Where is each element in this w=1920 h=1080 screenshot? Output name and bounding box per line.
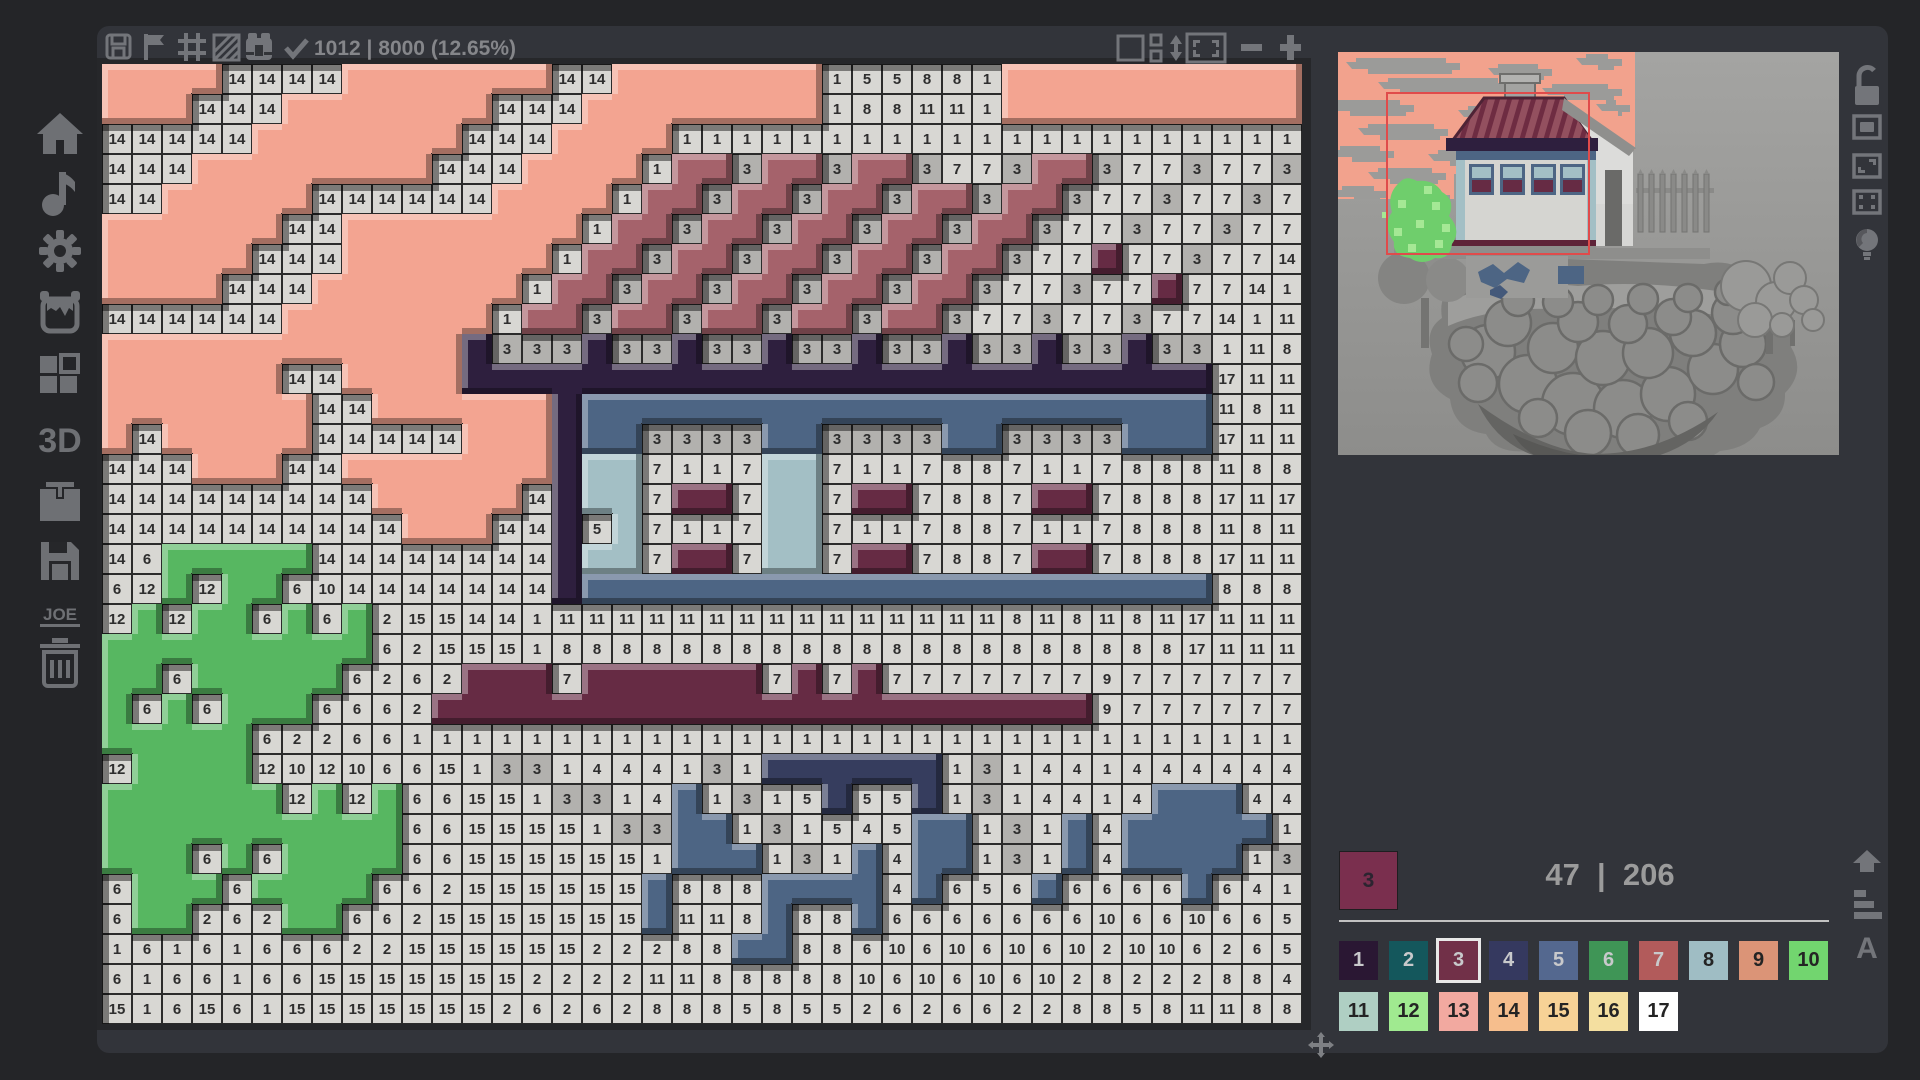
svg-text:2: 2 <box>293 731 301 748</box>
svg-text:6: 6 <box>293 971 301 988</box>
svg-text:1: 1 <box>983 821 991 838</box>
svg-text:14: 14 <box>259 101 276 118</box>
svg-text:14: 14 <box>469 581 486 598</box>
svg-text:8: 8 <box>1283 341 1291 358</box>
svg-text:7: 7 <box>563 671 571 688</box>
svg-text:15: 15 <box>439 911 456 928</box>
svg-text:8: 8 <box>743 641 751 658</box>
svg-text:4: 4 <box>1283 761 1292 778</box>
svg-text:12: 12 <box>199 581 216 598</box>
svg-text:15: 15 <box>559 881 576 898</box>
svg-text:7: 7 <box>1163 671 1171 688</box>
svg-text:8: 8 <box>1103 641 1111 658</box>
svg-text:3: 3 <box>1283 161 1291 178</box>
svg-text:1: 1 <box>893 131 901 148</box>
svg-text:14: 14 <box>139 311 156 328</box>
svg-text:14: 14 <box>319 551 336 568</box>
svg-text:1: 1 <box>983 71 991 88</box>
svg-text:3: 3 <box>1223 221 1231 238</box>
svg-text:8: 8 <box>683 1001 691 1018</box>
svg-text:14: 14 <box>139 161 156 178</box>
svg-text:2: 2 <box>563 971 571 988</box>
svg-text:6: 6 <box>1013 971 1021 988</box>
svg-text:6: 6 <box>983 1001 991 1018</box>
svg-text:1: 1 <box>623 731 631 748</box>
svg-text:7: 7 <box>1193 281 1201 298</box>
svg-text:8: 8 <box>1193 491 1201 508</box>
svg-text:3: 3 <box>863 431 871 448</box>
svg-text:6: 6 <box>293 581 301 598</box>
svg-text:6: 6 <box>443 821 451 838</box>
svg-text:11: 11 <box>709 911 725 928</box>
svg-text:6: 6 <box>203 941 211 958</box>
svg-text:4: 4 <box>1193 761 1202 778</box>
svg-text:14: 14 <box>439 431 456 448</box>
svg-text:6: 6 <box>233 1001 241 1018</box>
svg-text:11: 11 <box>1249 431 1265 448</box>
svg-text:15: 15 <box>559 941 576 958</box>
svg-text:14: 14 <box>379 581 396 598</box>
svg-text:11: 11 <box>979 611 995 628</box>
svg-text:4: 4 <box>1103 821 1112 838</box>
svg-text:8: 8 <box>1133 521 1141 538</box>
svg-text:6: 6 <box>383 911 391 928</box>
svg-text:2: 2 <box>443 671 451 688</box>
svg-text:7: 7 <box>1013 521 1021 538</box>
svg-text:1: 1 <box>773 791 781 808</box>
svg-text:11: 11 <box>859 611 875 628</box>
svg-text:15: 15 <box>289 1001 306 1018</box>
svg-text:14: 14 <box>289 281 306 298</box>
svg-text:8: 8 <box>1073 641 1081 658</box>
svg-text:4: 4 <box>1253 791 1262 808</box>
svg-text:1: 1 <box>863 731 871 748</box>
svg-text:11: 11 <box>1219 461 1235 478</box>
svg-text:15: 15 <box>499 881 516 898</box>
svg-text:1: 1 <box>683 461 691 478</box>
svg-text:2: 2 <box>413 641 421 658</box>
svg-text:3: 3 <box>623 821 631 838</box>
svg-text:7: 7 <box>743 551 751 568</box>
svg-text:2: 2 <box>1193 971 1201 988</box>
svg-text:14: 14 <box>109 491 126 508</box>
svg-text:10: 10 <box>1129 941 1146 958</box>
svg-text:8: 8 <box>1283 461 1291 478</box>
svg-text:7: 7 <box>983 161 991 178</box>
svg-text:14: 14 <box>139 521 156 538</box>
svg-text:3: 3 <box>1043 221 1051 238</box>
svg-text:1: 1 <box>833 851 841 868</box>
svg-text:1: 1 <box>983 131 991 148</box>
svg-text:6: 6 <box>203 971 211 988</box>
svg-text:15: 15 <box>499 911 516 928</box>
svg-text:1: 1 <box>593 731 601 748</box>
svg-text:6: 6 <box>113 881 121 898</box>
svg-text:11: 11 <box>1279 641 1295 658</box>
svg-text:7: 7 <box>653 521 661 538</box>
svg-text:8: 8 <box>1193 551 1201 568</box>
svg-text:1: 1 <box>533 641 541 658</box>
svg-text:1: 1 <box>773 851 781 868</box>
svg-text:14: 14 <box>319 431 336 448</box>
svg-text:15: 15 <box>469 791 486 808</box>
svg-text:14: 14 <box>289 71 306 88</box>
svg-text:6: 6 <box>1013 881 1021 898</box>
svg-text:1: 1 <box>1283 131 1291 148</box>
svg-text:14: 14 <box>379 551 396 568</box>
svg-text:14: 14 <box>259 71 276 88</box>
svg-text:14: 14 <box>499 521 516 538</box>
svg-text:3: 3 <box>623 281 631 298</box>
svg-text:3: 3 <box>1103 341 1111 358</box>
svg-text:1: 1 <box>503 731 511 748</box>
svg-text:2: 2 <box>1103 941 1111 958</box>
svg-text:1: 1 <box>1043 821 1051 838</box>
svg-text:3: 3 <box>893 431 901 448</box>
svg-text:6: 6 <box>353 731 361 748</box>
svg-text:15: 15 <box>109 1001 126 1018</box>
svg-text:1: 1 <box>653 851 661 868</box>
svg-text:15: 15 <box>619 911 636 928</box>
svg-text:1: 1 <box>683 761 691 778</box>
svg-text:1: 1 <box>1073 731 1081 748</box>
svg-text:14: 14 <box>169 131 186 148</box>
svg-text:6: 6 <box>233 911 241 928</box>
svg-text:11: 11 <box>649 971 665 988</box>
svg-text:3: 3 <box>653 251 661 268</box>
svg-text:8: 8 <box>1163 551 1171 568</box>
svg-text:11: 11 <box>1189 1001 1205 1018</box>
svg-text:14: 14 <box>289 251 306 268</box>
svg-text:4: 4 <box>1133 761 1142 778</box>
svg-text:8: 8 <box>833 941 841 958</box>
svg-text:1: 1 <box>473 761 481 778</box>
svg-text:15: 15 <box>409 1001 426 1018</box>
svg-text:6: 6 <box>263 941 271 958</box>
svg-text:1: 1 <box>713 521 721 538</box>
svg-text:7: 7 <box>923 521 931 538</box>
svg-text:14: 14 <box>139 131 156 148</box>
svg-text:1: 1 <box>1043 521 1051 538</box>
svg-text:14: 14 <box>229 131 246 148</box>
svg-text:1: 1 <box>1013 791 1021 808</box>
svg-text:4: 4 <box>1223 761 1232 778</box>
svg-text:14: 14 <box>319 461 336 478</box>
svg-text:6: 6 <box>953 971 961 988</box>
svg-text:8: 8 <box>1223 971 1231 988</box>
svg-text:15: 15 <box>349 1001 366 1018</box>
svg-text:3: 3 <box>833 341 841 358</box>
svg-text:8: 8 <box>983 491 991 508</box>
svg-text:2: 2 <box>1163 971 1171 988</box>
svg-text:8: 8 <box>1223 581 1231 598</box>
svg-text:7: 7 <box>1073 311 1081 328</box>
svg-text:7: 7 <box>923 551 931 568</box>
svg-text:1: 1 <box>923 731 931 748</box>
svg-text:1: 1 <box>503 311 511 328</box>
svg-text:14: 14 <box>499 611 516 628</box>
svg-text:1: 1 <box>413 731 421 748</box>
svg-text:11: 11 <box>1249 611 1265 628</box>
svg-text:3: 3 <box>1193 341 1201 358</box>
svg-text:3: 3 <box>713 191 721 208</box>
svg-text:14: 14 <box>109 521 126 538</box>
svg-text:A: A <box>1856 932 1878 965</box>
svg-text:8: 8 <box>1133 551 1141 568</box>
svg-text:11: 11 <box>649 611 665 628</box>
svg-text:4: 4 <box>1253 881 1262 898</box>
svg-text:7: 7 <box>1253 671 1261 688</box>
svg-text:2: 2 <box>383 611 391 628</box>
svg-text:7: 7 <box>983 311 991 328</box>
svg-text:1: 1 <box>863 461 871 478</box>
svg-text:6: 6 <box>1043 941 1051 958</box>
svg-text:1: 1 <box>143 1001 151 1018</box>
svg-text:8: 8 <box>1013 611 1021 628</box>
svg-text:3: 3 <box>983 761 991 778</box>
svg-text:14: 14 <box>199 521 216 538</box>
svg-text:4: 4 <box>653 791 662 808</box>
svg-text:1: 1 <box>713 791 721 808</box>
svg-text:14: 14 <box>469 131 486 148</box>
svg-text:11: 11 <box>619 611 635 628</box>
svg-text:1: 1 <box>1163 131 1171 148</box>
svg-text:1: 1 <box>1133 731 1141 748</box>
svg-text:2: 2 <box>383 671 391 688</box>
svg-text:7: 7 <box>1193 671 1201 688</box>
svg-text:1: 1 <box>113 941 121 958</box>
svg-text:1: 1 <box>893 731 901 748</box>
svg-text:3: 3 <box>863 311 871 328</box>
svg-text:8: 8 <box>893 641 901 658</box>
svg-text:1: 1 <box>1223 341 1231 358</box>
svg-text:1: 1 <box>953 731 961 748</box>
svg-text:1: 1 <box>1253 731 1261 748</box>
svg-text:8: 8 <box>683 941 691 958</box>
svg-text:3: 3 <box>893 281 901 298</box>
svg-text:7: 7 <box>1103 191 1111 208</box>
svg-text:3: 3 <box>983 341 991 358</box>
svg-text:14: 14 <box>199 101 216 118</box>
svg-text:1: 1 <box>953 791 961 808</box>
svg-text:7: 7 <box>953 161 961 178</box>
svg-text:15: 15 <box>559 851 576 868</box>
svg-text:14: 14 <box>319 521 336 538</box>
svg-text:2: 2 <box>623 1001 631 1018</box>
svg-text:15: 15 <box>469 971 486 988</box>
svg-text:3: 3 <box>953 221 961 238</box>
svg-text:14: 14 <box>1279 251 1296 268</box>
svg-text:2: 2 <box>533 971 541 988</box>
svg-text:14: 14 <box>349 491 366 508</box>
svg-text:7: 7 <box>1253 161 1261 178</box>
svg-text:11: 11 <box>1279 611 1295 628</box>
svg-text:14: 14 <box>409 191 426 208</box>
svg-text:11: 11 <box>709 611 725 628</box>
svg-text:4: 4 <box>1073 761 1082 778</box>
svg-text:8: 8 <box>1073 1001 1081 1018</box>
svg-text:10: 10 <box>1009 941 1026 958</box>
svg-text:4: 4 <box>623 761 632 778</box>
svg-text:14: 14 <box>109 461 126 478</box>
svg-text:8: 8 <box>683 881 691 898</box>
svg-text:11: 11 <box>1279 521 1295 538</box>
svg-text:6: 6 <box>353 671 361 688</box>
svg-text:1: 1 <box>1223 731 1231 748</box>
svg-text:1: 1 <box>863 521 871 538</box>
svg-text:6: 6 <box>143 701 151 718</box>
svg-text:2: 2 <box>563 1001 571 1018</box>
svg-text:14: 14 <box>499 551 516 568</box>
svg-text:3: 3 <box>893 191 901 208</box>
svg-text:14: 14 <box>319 491 336 508</box>
svg-text:7: 7 <box>1013 491 1021 508</box>
svg-text:7: 7 <box>1133 191 1141 208</box>
svg-text:3: 3 <box>923 251 931 268</box>
svg-text:15: 15 <box>319 971 336 988</box>
svg-text:15: 15 <box>529 851 546 868</box>
svg-text:7: 7 <box>1073 221 1081 238</box>
svg-text:1: 1 <box>1193 131 1201 148</box>
svg-text:4: 4 <box>653 761 662 778</box>
svg-text:8: 8 <box>953 71 961 88</box>
svg-text:4: 4 <box>1043 791 1052 808</box>
svg-text:6: 6 <box>263 611 271 628</box>
svg-text:1: 1 <box>983 731 991 748</box>
svg-text:6: 6 <box>953 911 961 928</box>
svg-text:11: 11 <box>1159 611 1175 628</box>
svg-text:6: 6 <box>173 971 181 988</box>
svg-text:1: 1 <box>1253 851 1261 868</box>
svg-text:5: 5 <box>593 521 601 538</box>
svg-text:2: 2 <box>593 941 601 958</box>
svg-text:10: 10 <box>889 941 906 958</box>
svg-text:8: 8 <box>1193 521 1201 538</box>
svg-text:7: 7 <box>833 671 841 688</box>
svg-text:12: 12 <box>139 581 156 598</box>
svg-text:3: 3 <box>503 341 511 358</box>
svg-text:1: 1 <box>833 71 841 88</box>
svg-text:1: 1 <box>1073 131 1081 148</box>
svg-text:3: 3 <box>923 341 931 358</box>
svg-text:14: 14 <box>259 521 276 538</box>
svg-text:14: 14 <box>439 581 456 598</box>
svg-text:7: 7 <box>1193 191 1201 208</box>
svg-text:8: 8 <box>773 641 781 658</box>
svg-text:3: 3 <box>1073 281 1081 298</box>
svg-text:6: 6 <box>113 911 121 928</box>
svg-text:7: 7 <box>1223 701 1231 718</box>
svg-text:7: 7 <box>1283 701 1291 718</box>
svg-text:8: 8 <box>1253 971 1261 988</box>
svg-text:14: 14 <box>559 71 576 88</box>
svg-text:3: 3 <box>743 791 751 808</box>
svg-text:14: 14 <box>259 311 276 328</box>
svg-text:3: 3 <box>1133 221 1141 238</box>
svg-text:14: 14 <box>229 71 246 88</box>
svg-text:15: 15 <box>499 851 516 868</box>
svg-text:3: 3 <box>1193 161 1201 178</box>
svg-text:1: 1 <box>593 221 601 238</box>
svg-text:3: 3 <box>533 761 541 778</box>
svg-text:1: 1 <box>1223 131 1231 148</box>
svg-text:11: 11 <box>1099 611 1115 628</box>
svg-text:15: 15 <box>439 611 456 628</box>
svg-text:11: 11 <box>1249 641 1265 658</box>
svg-text:14: 14 <box>109 551 126 568</box>
svg-text:14: 14 <box>469 611 486 628</box>
svg-text:8: 8 <box>1073 611 1081 628</box>
svg-text:8: 8 <box>1013 641 1021 658</box>
svg-text:8: 8 <box>833 641 841 658</box>
svg-text:17: 17 <box>1219 431 1236 448</box>
svg-text:1: 1 <box>1073 521 1081 538</box>
svg-text:7: 7 <box>1013 671 1021 688</box>
svg-text:7: 7 <box>1283 191 1291 208</box>
svg-text:7: 7 <box>1133 701 1141 718</box>
svg-text:4: 4 <box>1073 791 1082 808</box>
svg-text:2: 2 <box>1133 971 1141 988</box>
svg-text:15: 15 <box>499 791 516 808</box>
svg-text:15: 15 <box>529 941 546 958</box>
svg-text:6: 6 <box>233 881 241 898</box>
svg-text:1: 1 <box>983 851 991 868</box>
svg-text:1: 1 <box>173 941 181 958</box>
svg-text:8: 8 <box>1253 461 1261 478</box>
svg-text:3: 3 <box>1253 191 1261 208</box>
svg-text:7: 7 <box>1223 251 1231 268</box>
svg-text:14: 14 <box>439 191 456 208</box>
svg-text:14: 14 <box>529 131 546 148</box>
svg-text:6: 6 <box>353 911 361 928</box>
svg-text:11: 11 <box>679 911 695 928</box>
svg-text:1: 1 <box>563 731 571 748</box>
svg-text:11: 11 <box>799 611 815 628</box>
svg-text:8: 8 <box>803 911 811 928</box>
svg-text:3: 3 <box>1013 431 1021 448</box>
svg-text:6: 6 <box>1133 881 1141 898</box>
svg-text:7: 7 <box>1103 281 1111 298</box>
svg-text:11: 11 <box>1249 371 1265 388</box>
svg-text:3: 3 <box>863 221 871 238</box>
svg-text:7: 7 <box>953 671 961 688</box>
svg-text:15: 15 <box>409 941 426 958</box>
svg-text:7: 7 <box>1223 161 1231 178</box>
svg-text:3: 3 <box>713 431 721 448</box>
svg-text:6: 6 <box>203 701 211 718</box>
svg-text:3: 3 <box>683 431 691 448</box>
svg-text:6: 6 <box>413 851 421 868</box>
svg-text:14: 14 <box>229 521 246 538</box>
svg-text:3: 3 <box>833 161 841 178</box>
svg-text:8: 8 <box>623 641 631 658</box>
svg-text:14: 14 <box>109 161 126 178</box>
svg-text:1: 1 <box>833 101 841 118</box>
svg-text:1: 1 <box>1013 761 1021 778</box>
svg-text:14: 14 <box>529 101 546 118</box>
svg-text:7: 7 <box>1013 311 1021 328</box>
svg-text:4: 4 <box>1283 971 1292 988</box>
svg-text:14: 14 <box>139 191 156 208</box>
svg-text:3: 3 <box>533 341 541 358</box>
svg-text:6: 6 <box>323 941 331 958</box>
svg-text:14: 14 <box>319 221 336 238</box>
svg-text:2: 2 <box>1073 971 1081 988</box>
svg-text:14: 14 <box>229 491 246 508</box>
svg-text:5: 5 <box>803 791 811 808</box>
svg-text:11: 11 <box>919 611 935 628</box>
svg-text:6: 6 <box>1133 911 1141 928</box>
